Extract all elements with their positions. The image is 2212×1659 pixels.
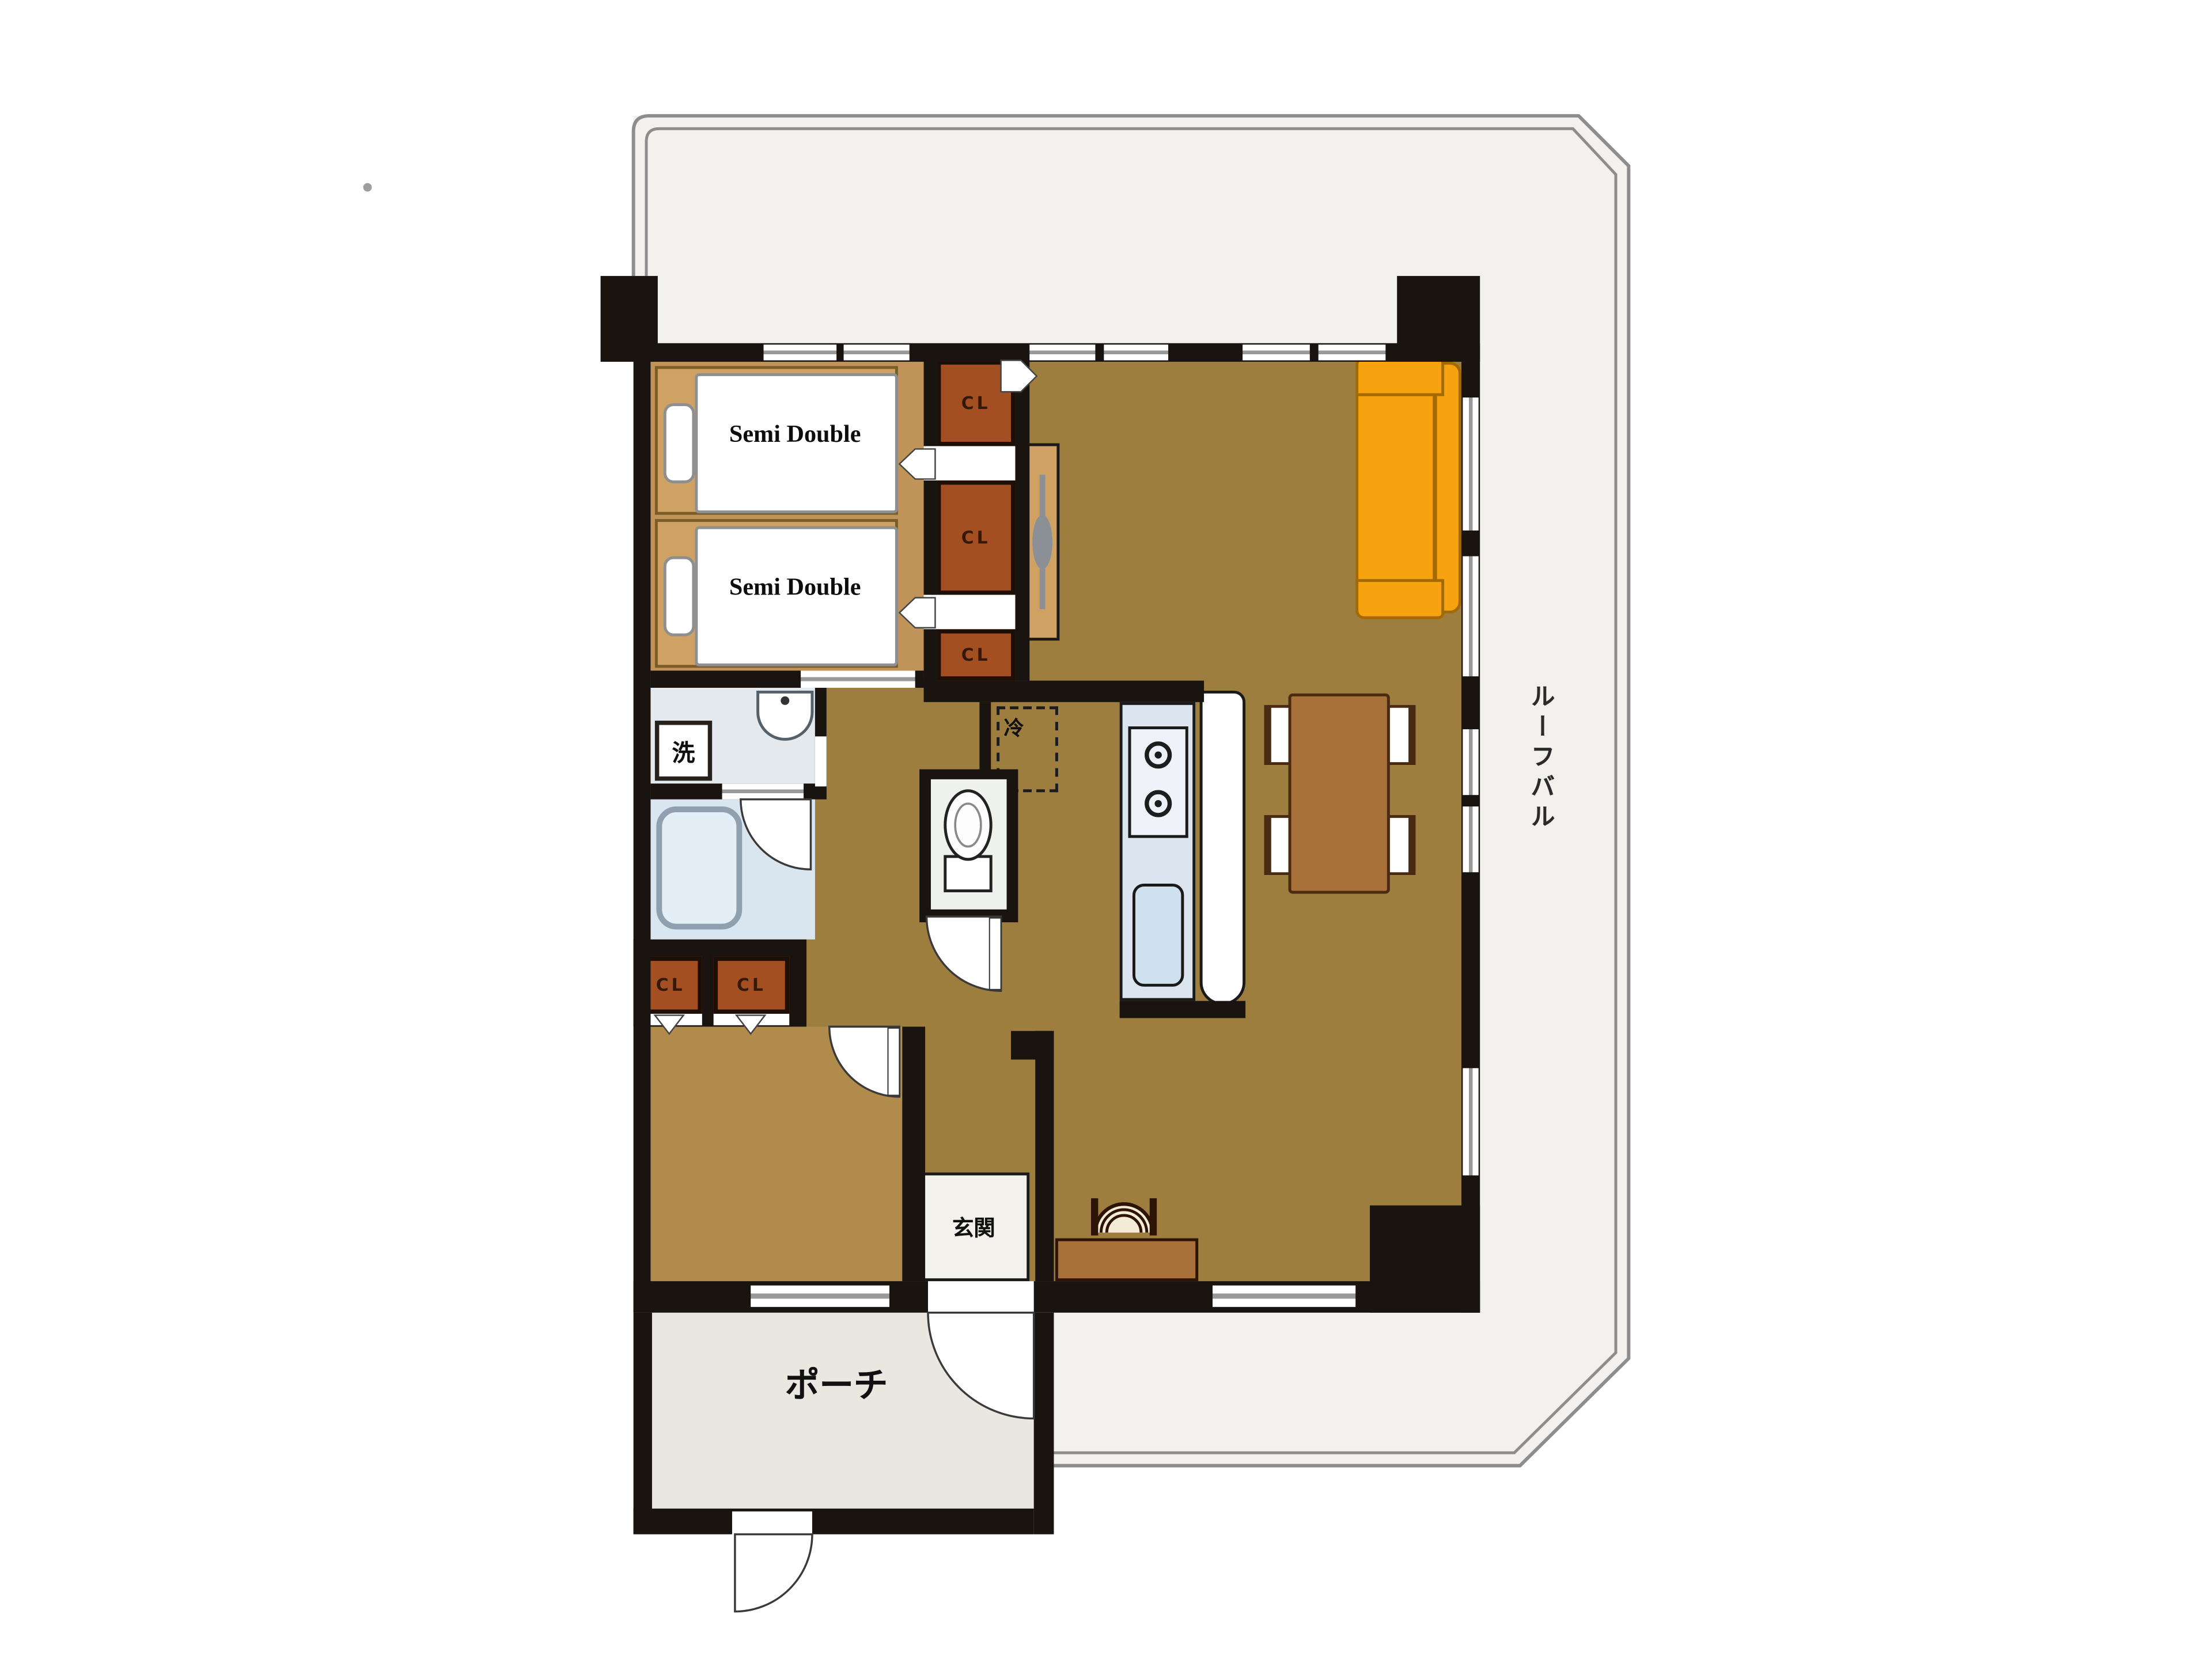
toilet-tank	[945, 857, 991, 891]
ldk-closet-arrow-icon	[1001, 361, 1037, 392]
fixtures-overlay	[0, 0, 2212, 1658]
toilet-bowl	[945, 791, 991, 859]
porch-gate-door-arc	[735, 1535, 812, 1612]
roof-balcony-label: ルーフバル	[1513, 684, 1567, 948]
floor-plan: Semi Double Semi Double CL CL CL 洗 冷 CL …	[0, 0, 2212, 1658]
stove-burner-2-center	[1154, 800, 1161, 807]
front-door-arc	[928, 1313, 1034, 1419]
stove-burner-1-center	[1154, 751, 1161, 758]
closet-2-arrow-icon	[899, 598, 935, 628]
cabinet-decor-post-left	[1091, 1198, 1098, 1236]
bathroom-door-arc	[741, 800, 811, 870]
cabinet-decor-arc-outer	[1095, 1204, 1152, 1233]
closet-1-arrow-icon	[899, 449, 935, 479]
bedroom2-door-leaf	[888, 1028, 900, 1096]
cabinet-decor-post-right	[1150, 1198, 1157, 1236]
closet-4-arrow-icon	[655, 1015, 684, 1033]
toilet-door-leaf	[990, 918, 1001, 990]
closet-5-arrow-icon	[736, 1015, 765, 1033]
washbasin-faucet-icon	[781, 696, 789, 705]
porch-label: ポーチ	[772, 1358, 900, 1404]
